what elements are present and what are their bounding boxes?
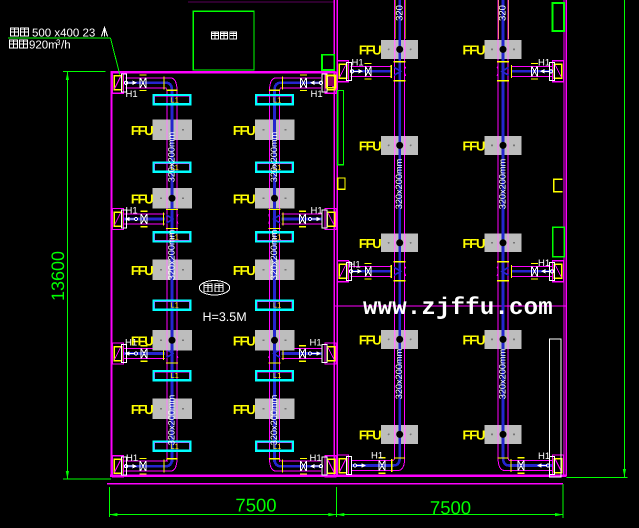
svg-text:320x200mm: 320x200mm bbox=[269, 229, 279, 280]
svg-text:FFU: FFU bbox=[463, 138, 485, 153]
svg-text:L1: L1 bbox=[273, 95, 281, 104]
svg-text:320x200mm: 320x200mm bbox=[167, 394, 177, 445]
svg-text:H1: H1 bbox=[352, 58, 364, 69]
svg-text:FFU: FFU bbox=[233, 263, 255, 278]
svg-text:H1: H1 bbox=[310, 453, 322, 464]
svg-text:FFU: FFU bbox=[131, 123, 153, 138]
svg-text:7500: 7500 bbox=[235, 495, 276, 516]
svg-text:320: 320 bbox=[498, 5, 509, 21]
svg-text:www.zjffu.com: www.zjffu.com bbox=[363, 295, 553, 322]
svg-text:H1: H1 bbox=[310, 338, 322, 349]
svg-text:FFU: FFU bbox=[233, 191, 255, 206]
svg-text:320x200mm: 320x200mm bbox=[167, 131, 177, 182]
svg-text:H1: H1 bbox=[126, 206, 138, 217]
svg-text:13600: 13600 bbox=[48, 251, 68, 301]
svg-text:H1: H1 bbox=[126, 89, 138, 100]
svg-text:320x200mm: 320x200mm bbox=[269, 394, 279, 445]
svg-text:320: 320 bbox=[394, 5, 405, 21]
svg-text:FFU: FFU bbox=[359, 236, 381, 251]
svg-text:L1: L1 bbox=[273, 371, 281, 380]
svg-text:FFU: FFU bbox=[131, 191, 153, 206]
svg-text:H1: H1 bbox=[349, 260, 361, 271]
svg-text:FFU: FFU bbox=[233, 402, 255, 417]
svg-text:FFU: FFU bbox=[131, 402, 153, 417]
svg-text:H1: H1 bbox=[538, 258, 550, 269]
svg-text:L1: L1 bbox=[171, 371, 179, 380]
svg-text:H1: H1 bbox=[538, 451, 550, 462]
svg-text:320x200mm: 320x200mm bbox=[498, 348, 508, 399]
svg-text:H1: H1 bbox=[126, 453, 138, 464]
svg-text:L1: L1 bbox=[171, 95, 179, 104]
svg-text:FFU: FFU bbox=[359, 42, 381, 57]
svg-text:FFU: FFU bbox=[463, 42, 485, 57]
svg-text:FFU: FFU bbox=[359, 332, 381, 347]
svg-text:FFU: FFU bbox=[359, 427, 381, 442]
svg-text:H1: H1 bbox=[125, 338, 137, 349]
svg-text:320x200mm: 320x200mm bbox=[394, 348, 404, 399]
svg-text:FFU: FFU bbox=[463, 427, 485, 442]
svg-text:H1: H1 bbox=[311, 89, 323, 100]
svg-text:FFU: FFU bbox=[131, 263, 153, 278]
svg-text:320x200mm: 320x200mm bbox=[269, 131, 279, 182]
svg-text:FFU: FFU bbox=[233, 123, 255, 138]
svg-text:H1: H1 bbox=[311, 206, 323, 217]
svg-text:320x200mm: 320x200mm bbox=[167, 229, 177, 280]
svg-text:H=3.5M: H=3.5M bbox=[203, 310, 247, 324]
svg-text:L1: L1 bbox=[273, 301, 281, 310]
svg-text:FFU: FFU bbox=[233, 333, 255, 348]
svg-text:L1: L1 bbox=[171, 301, 179, 310]
svg-text:920m: 920m bbox=[29, 40, 58, 52]
svg-text:320x200mm: 320x200mm bbox=[498, 158, 508, 209]
svg-text:FFU: FFU bbox=[463, 236, 485, 251]
svg-text:320x200mm: 320x200mm bbox=[394, 158, 404, 209]
svg-text:H1: H1 bbox=[371, 451, 383, 462]
svg-text:H1: H1 bbox=[538, 58, 550, 69]
svg-text:FFU: FFU bbox=[359, 138, 381, 153]
svg-text:7500: 7500 bbox=[430, 497, 471, 518]
svg-text:FFU: FFU bbox=[463, 332, 485, 347]
svg-text:/h: /h bbox=[61, 40, 71, 52]
